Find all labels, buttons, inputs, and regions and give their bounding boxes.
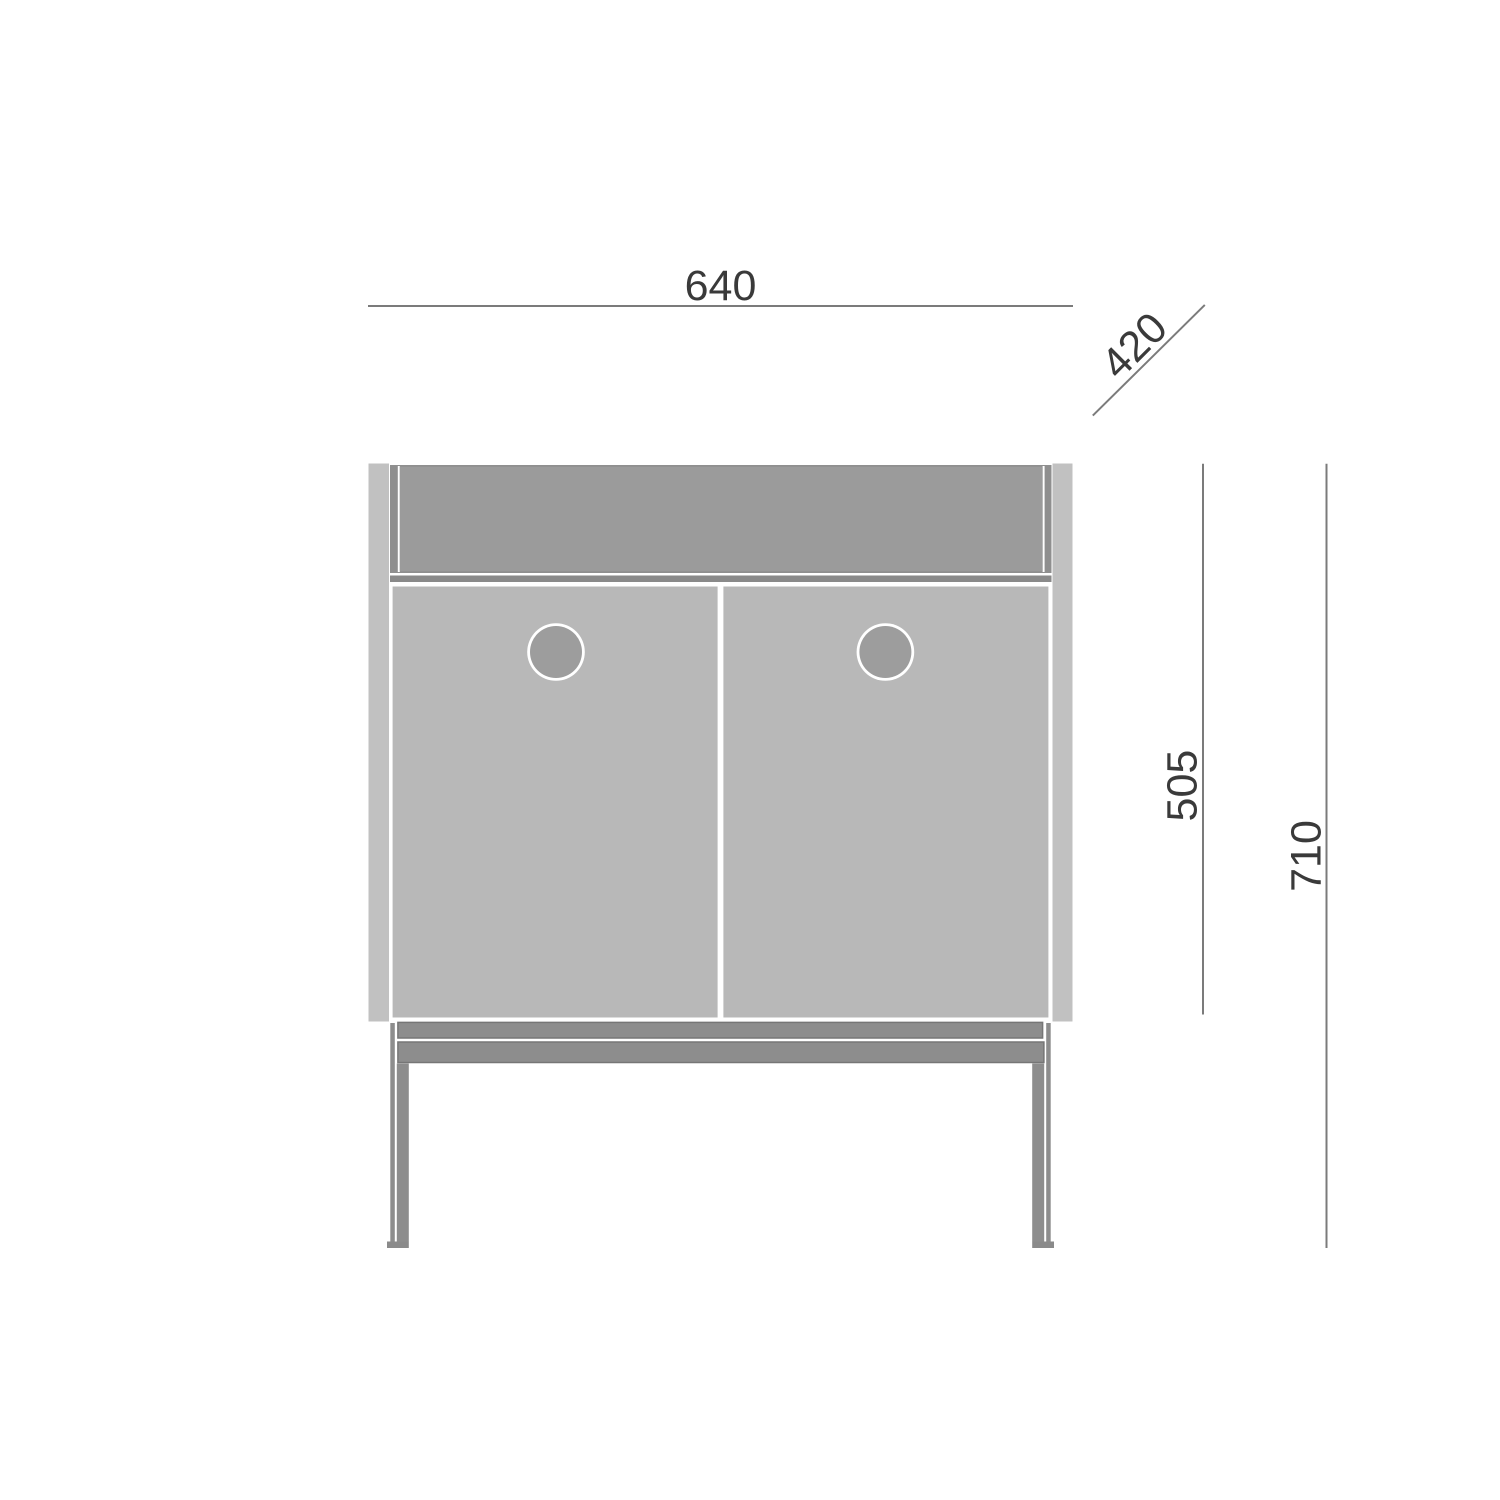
svg-text:710: 710	[1283, 820, 1331, 892]
svg-text:640: 640	[685, 262, 757, 310]
svg-text:505: 505	[1159, 750, 1207, 822]
